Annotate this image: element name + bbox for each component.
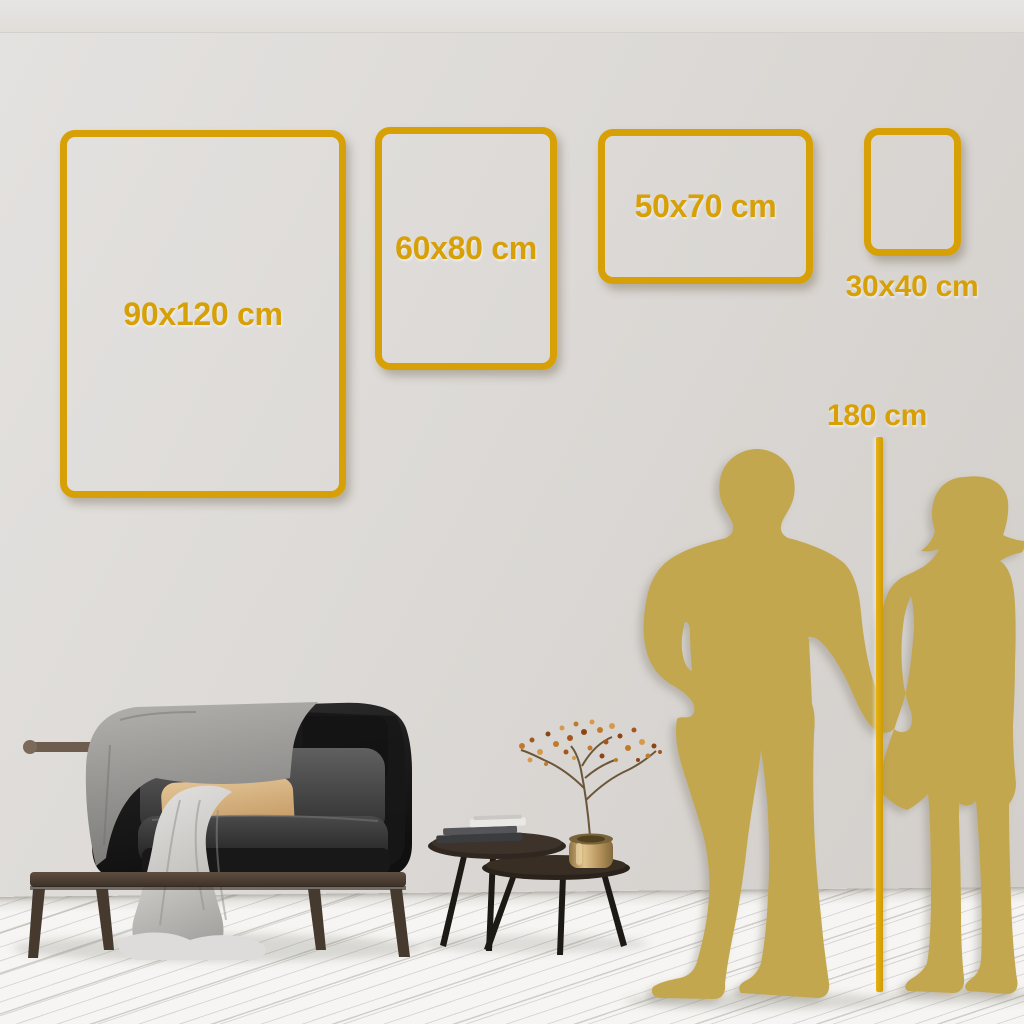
sofa-arm-rail	[24, 742, 144, 752]
size-frame-90x120: 90x120 cm	[60, 130, 346, 498]
size-frame-30x40	[864, 128, 961, 256]
sofa-base-rail	[30, 872, 406, 887]
gray-blanket	[86, 702, 318, 866]
size-frame-50x70: 50x70 cm	[598, 129, 813, 284]
sofa-back-cushion	[140, 748, 385, 836]
books-stack	[436, 814, 527, 843]
low-table-top	[482, 856, 630, 880]
size-guide-scene: 90x120 cm 60x80 cm 50x70 cm 30x40 cm 180…	[0, 0, 1024, 1024]
tall-table-top	[428, 833, 566, 859]
height-reference-line	[876, 437, 883, 992]
tan-pillow	[161, 777, 296, 846]
brass-vase	[569, 838, 613, 868]
size-label-90x120: 90x120 cm	[123, 296, 282, 333]
size-label-60x80: 60x80 cm	[395, 230, 537, 267]
ceiling-line	[0, 0, 1024, 33]
size-label-30x40: 30x40 cm	[812, 270, 1012, 304]
height-reference-label: 180 cm	[800, 399, 954, 433]
branch-berries	[519, 720, 662, 767]
sofa-shell	[92, 703, 412, 878]
size-label-50x70: 50x70 cm	[635, 188, 777, 225]
wood-plank-floor	[0, 887, 1024, 1024]
branch-stems	[521, 737, 656, 836]
vase-branch	[519, 720, 662, 869]
seat-cushion	[138, 816, 388, 866]
size-frame-60x80: 60x80 cm	[375, 127, 557, 370]
